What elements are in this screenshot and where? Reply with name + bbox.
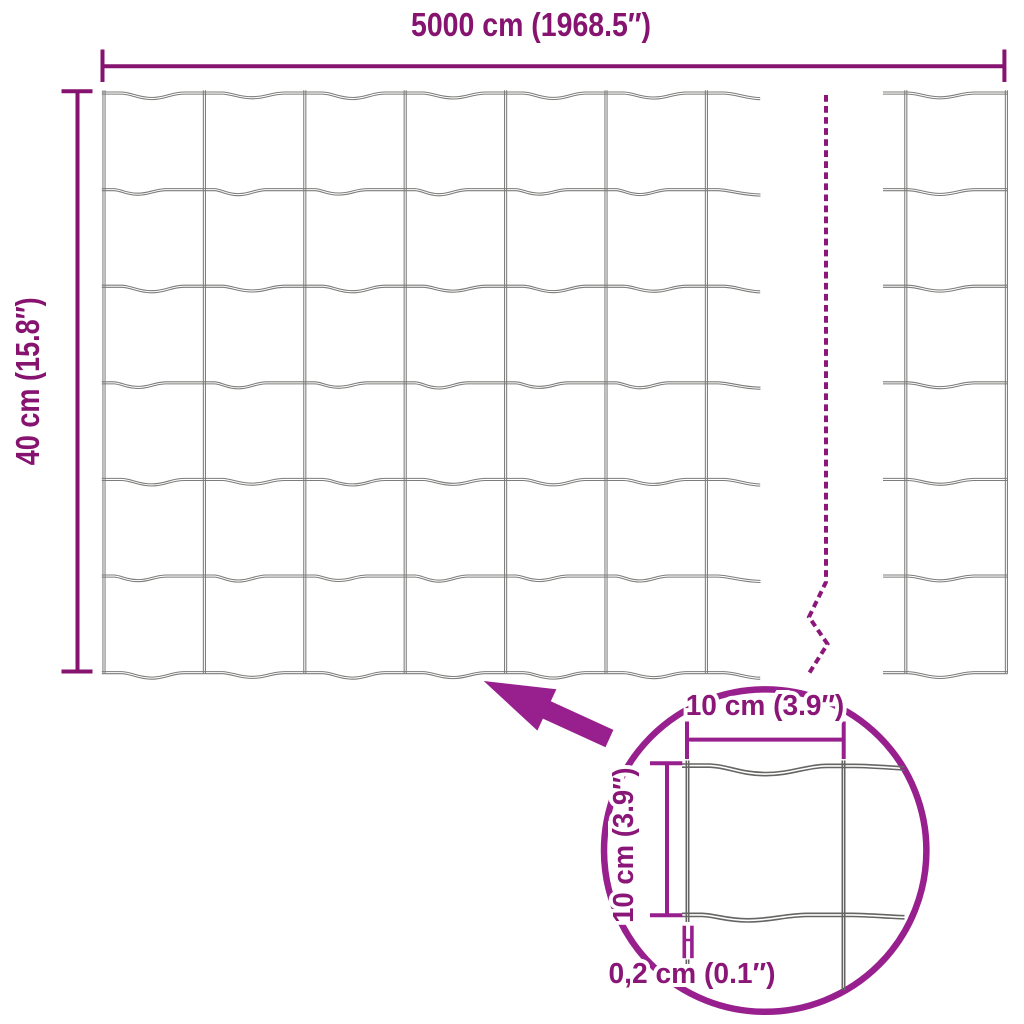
svg-text:10 cm (3.9″): 10 cm (3.9″) xyxy=(608,768,640,923)
svg-text:5000 cm (1968.5″): 5000 cm (1968.5″) xyxy=(411,6,651,43)
svg-text:40 cm (15.8″): 40 cm (15.8″) xyxy=(9,297,46,465)
svg-text:10 cm (3.9″): 10 cm (3.9″) xyxy=(686,690,845,722)
svg-text:0,2 cm (0.1″): 0,2 cm (0.1″) xyxy=(609,958,776,990)
